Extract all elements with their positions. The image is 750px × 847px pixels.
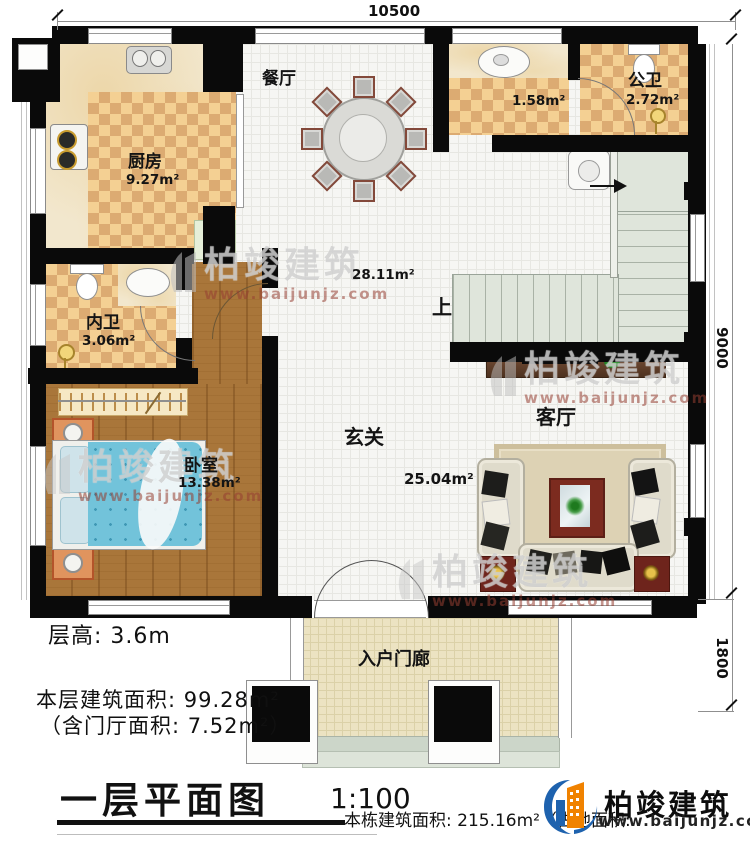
wardrobe	[58, 388, 188, 416]
wall-segment	[684, 332, 706, 350]
wash-basin-drain	[493, 54, 509, 66]
private-bath-area: 3.06m²	[82, 334, 135, 349]
window-symbol	[88, 600, 230, 615]
dimension-label-top: 10500	[368, 2, 420, 20]
window-symbol	[508, 600, 652, 615]
window-symbol	[690, 444, 705, 518]
sofa-cushion	[553, 551, 578, 576]
wall-segment	[492, 135, 688, 152]
dining-chair	[301, 128, 323, 150]
dimension-extension	[698, 711, 734, 712]
wall-segment	[30, 248, 194, 264]
nightstand-bottom-lamp	[63, 553, 83, 573]
dining-table-center	[339, 114, 387, 162]
stove-burner-2	[57, 150, 77, 170]
stair-flight-horizontal	[452, 274, 619, 344]
wall-segment	[203, 206, 235, 264]
corner-flue-box	[18, 44, 48, 70]
sheet-title: 一层平面图	[60, 770, 270, 824]
kitchen-area: 9.27m²	[126, 173, 179, 188]
window-symbol	[30, 284, 46, 346]
wall-segment	[434, 686, 492, 742]
wall-segment	[28, 368, 198, 384]
dining-label: 餐厅	[262, 70, 296, 89]
side-table-left-flower	[489, 565, 505, 581]
side-table-right-flower	[643, 565, 659, 581]
public-bath-label: 公卫	[628, 72, 662, 91]
stair-flight-vertical	[616, 211, 690, 344]
brand-url: www.baijunjz.com	[598, 812, 750, 830]
stairs-up-label: 上	[432, 296, 452, 318]
dimension-label-right: 9000	[713, 327, 731, 369]
wall-sill-line	[714, 44, 715, 600]
bed-pillow-1	[60, 446, 90, 493]
kitchen-sliding-door-track	[236, 94, 244, 208]
kitchen-label: 厨房	[128, 153, 162, 172]
dining-area: 28.11m²	[352, 268, 415, 283]
title-underline-thin	[57, 834, 377, 835]
window-symbol	[255, 28, 425, 44]
bedroom-label: 卧室	[184, 457, 218, 476]
bed-pillow-2	[60, 497, 90, 544]
dimension-extension	[698, 599, 734, 600]
foyer-area: 25.04m²	[404, 471, 474, 488]
wall-segment	[568, 44, 580, 80]
wall-segment	[262, 336, 278, 598]
stair-arrow-line	[590, 185, 616, 187]
wardrobe-rail	[58, 400, 186, 402]
private-bath-label: 内卫	[86, 314, 120, 333]
dining-chair	[353, 76, 375, 98]
porch-rail-right	[558, 618, 572, 738]
window-symbol	[88, 28, 172, 44]
sofa-cushion	[579, 550, 603, 574]
stove-burner-1	[57, 130, 77, 150]
hall-area-note: （含门厅面积: 7.52m²）	[40, 710, 291, 740]
sofa-cushion	[526, 549, 552, 575]
window-symbol	[452, 28, 562, 44]
wall-segment	[176, 264, 192, 290]
brand-logo-icon	[540, 776, 600, 838]
dimension-line-top	[57, 21, 735, 22]
public-bath-drain-stem	[655, 121, 657, 134]
private-bath-drain-icon	[58, 344, 75, 361]
dimension-line-right	[732, 44, 733, 712]
dining-chair	[405, 128, 427, 150]
sofa-cushion	[631, 468, 659, 496]
public-bath-drain-icon	[650, 108, 666, 124]
foyer-label: 玄关	[344, 426, 384, 448]
water-heater-dial	[578, 160, 600, 182]
wall-sill-line	[709, 44, 710, 600]
title-underline	[57, 820, 345, 825]
window-symbol	[690, 214, 705, 282]
dining-chair	[353, 180, 375, 202]
porch-label: 入户门廊	[358, 650, 430, 670]
stair-partition	[610, 150, 618, 278]
wash-area: 1.58m²	[512, 94, 565, 109]
stair-arrow-icon	[614, 179, 627, 193]
private-bath-sink	[126, 268, 170, 297]
wall-segment	[684, 518, 706, 536]
kitchen-sink-bowl-left	[132, 50, 148, 67]
floor-plan-canvas: 10500 9000 1800	[0, 0, 750, 847]
stair-landing	[616, 150, 690, 214]
kitchen-sink-bowl-right	[150, 50, 166, 67]
coffee-table-plant	[565, 496, 585, 516]
sofa-cushion	[481, 470, 508, 497]
wall-segment	[203, 26, 243, 92]
wall-segment	[684, 182, 706, 200]
living-label: 客厅	[536, 406, 576, 428]
wall-sill-line	[21, 90, 22, 600]
wall-sill-line	[26, 90, 27, 600]
bedroom-area: 13.38m²	[178, 476, 241, 491]
private-toilet-bowl	[76, 273, 98, 300]
floor-height-note: 层高: 3.6m	[48, 618, 171, 650]
dimension-label-porch: 1800	[713, 637, 731, 679]
wall-segment	[450, 342, 698, 362]
wall-segment	[433, 135, 449, 152]
wall-segment	[262, 248, 278, 288]
window-symbol	[30, 128, 46, 214]
public-bath-area: 2.72m²	[626, 93, 679, 108]
window-symbol	[30, 446, 46, 546]
